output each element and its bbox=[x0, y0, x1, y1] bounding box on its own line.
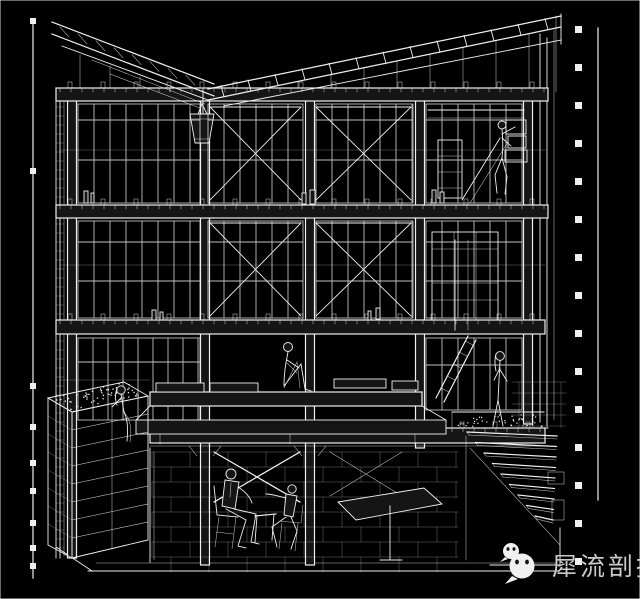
wechat-icon bbox=[500, 543, 535, 584]
watermark-text: 犀流剖报 bbox=[552, 552, 640, 581]
block-wall-right bbox=[512, 382, 566, 428]
right-tick-marks bbox=[575, 26, 582, 565]
staircase bbox=[467, 432, 557, 523]
figure-seated-left bbox=[214, 469, 259, 549]
figure-seated-right bbox=[266, 485, 303, 551]
planter-cabinet bbox=[48, 382, 148, 558]
section-drawing: 犀流剖报 bbox=[0, 0, 640, 599]
interior-depth-lines bbox=[60, 150, 545, 380]
right-wall bbox=[540, 16, 556, 426]
screenshot-root: 犀流剖报 bbox=[0, 0, 640, 599]
drafting-table bbox=[338, 488, 442, 560]
joist-ticks bbox=[60, 82, 544, 432]
bench-platform bbox=[136, 379, 446, 444]
stool bbox=[255, 514, 276, 542]
watermark: 犀流剖报 bbox=[500, 543, 640, 584]
figure-sitting-planter bbox=[112, 386, 131, 442]
shelf-rack-f3 bbox=[428, 110, 527, 203]
